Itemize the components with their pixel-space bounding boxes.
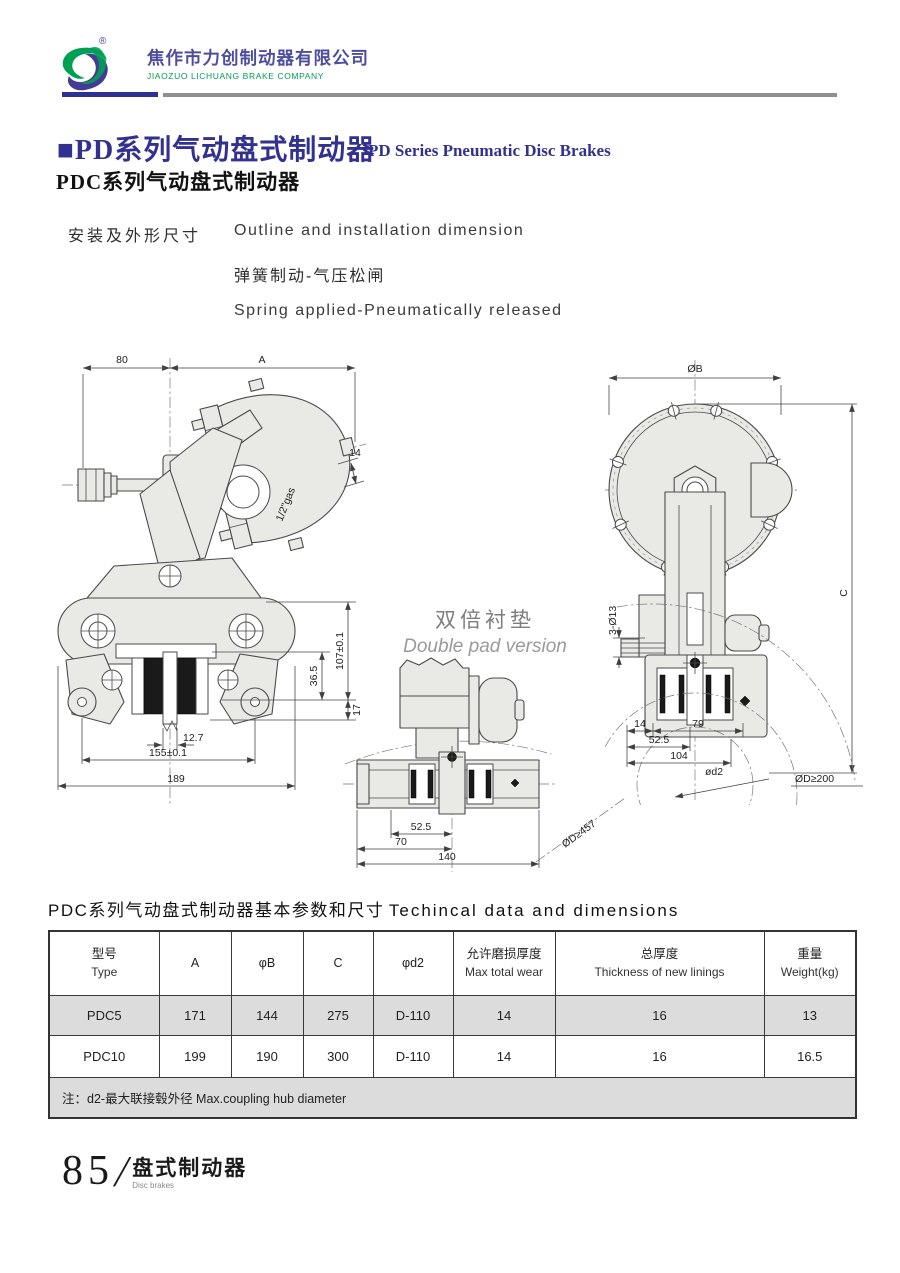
dim-side-104: 104: [670, 750, 688, 762]
table-cell: 16: [555, 1035, 764, 1077]
double-pad-caption: 双倍衬垫 Double pad version: [345, 604, 625, 658]
col-header-phiB: φB: [231, 931, 303, 995]
dim-dp-disc: ØD≥457: [560, 818, 599, 851]
logo-swirl-icon: [55, 40, 141, 96]
page-title-cn: ■PD系列气动盘式制动器: [57, 128, 375, 168]
spec-table: 型号Type A φB C φd2 允许磨损厚度Max total wear 总…: [48, 930, 857, 1119]
page-number: 85: [62, 1150, 114, 1192]
dim-A: A: [258, 354, 265, 366]
drawing-double-pad: 52.5 70 140 ØD≥457: [343, 652, 628, 883]
table-cell: 275: [303, 995, 373, 1035]
table-cell: 190: [231, 1035, 303, 1077]
col-header-thickness: 总厚度Thickness of new linings: [555, 931, 764, 995]
dim-3xO13: 3-Ø13: [607, 606, 619, 635]
dim-dp-140: 140: [438, 851, 456, 863]
table-cell: D-110: [373, 1035, 453, 1077]
table-cell: 199: [159, 1035, 231, 1077]
table-cell: 16: [555, 995, 764, 1035]
col-header-A: A: [159, 931, 231, 995]
dim-hub-d2: ød2: [705, 766, 723, 778]
col-header-max-wear: 允许磨损厚度Max total wear: [453, 931, 555, 995]
col-header-type: 型号Type: [49, 931, 159, 995]
brake-pad-left: [144, 658, 163, 714]
table-row-pdc10: PDC10 199 190 300 D-110 14 16 16.5: [49, 1035, 856, 1077]
table-cell: D-110: [373, 995, 453, 1035]
intro-label-en: Outline and installation dimension: [234, 222, 524, 240]
table-cell: 300: [303, 1035, 373, 1077]
company-logo: [55, 40, 141, 96]
table-title-cn: PDC系列气动盘式制动器基本参数和尺寸: [48, 901, 384, 920]
table-cell: 16.5: [764, 1035, 856, 1077]
table-title-en: Techincal data and dimensions: [389, 901, 679, 920]
footer-section-en: Disc brakes: [132, 1181, 247, 1190]
intro-line2-cn: 弹簧制动-气压松闸: [234, 262, 385, 286]
page-subtitle: PDC系列气动盘式制动器: [56, 166, 300, 196]
table-note: 注：d2-最大联接毂外径 Max.coupling hub diameter: [49, 1077, 856, 1118]
table-row-pdc5: PDC5 171 144 275 D-110 14 16 13: [49, 995, 856, 1035]
dim-dp-70: 70: [395, 836, 407, 848]
dim-side-14: 14: [634, 718, 646, 730]
table-cell: PDC10: [49, 1035, 159, 1077]
table-cell: 144: [231, 995, 303, 1035]
footer-slash: /: [111, 1150, 133, 1194]
table-cell: 14: [453, 1035, 555, 1077]
double-pad-title-cn: 双倍衬垫: [345, 604, 625, 634]
table-header-row: 型号Type A φB C φd2 允许磨损厚度Max total wear 总…: [49, 931, 856, 995]
table-cell: 171: [159, 995, 231, 1035]
drawing-front-view: 80 A 1/2"gas 14: [50, 352, 370, 812]
drawing-side-view: ØB C: [605, 355, 895, 805]
table-title: PDC系列气动盘式制动器基本参数和尺寸 Techincal data and d…: [48, 896, 679, 921]
footer-section-cn: 盘式制动器: [132, 1158, 247, 1179]
page-footer: 85 / 盘式制动器 Disc brakes: [62, 1150, 247, 1194]
company-name-cn: 焦作市力创制动器有限公司: [147, 45, 369, 70]
dim-12-7: 12.7: [183, 732, 204, 744]
header-divider-gray: [163, 93, 837, 97]
col-header-weight: 重量Weight(kg): [764, 931, 856, 995]
dim-155: 155±0.1: [149, 747, 187, 759]
table-cell: PDC5: [49, 995, 159, 1035]
dim-C: C: [838, 589, 850, 597]
dim-dp-52-5: 52.5: [411, 821, 432, 833]
dim-189: 189: [167, 773, 185, 785]
company-name-en: JIAOZUO LICHUANG BRAKE COMPANY: [147, 71, 369, 81]
dim-disc-200: ØD≥200: [795, 773, 834, 785]
dim-14: 14: [349, 447, 361, 459]
col-header-C: C: [303, 931, 373, 995]
catalog-page: ® 焦作市力创制动器有限公司 JIAOZUO LICHUANG BRAKE CO…: [0, 0, 900, 1273]
table-cell: 13: [764, 995, 856, 1035]
page-title-en: PD Series Pneumatic Disc Brakes: [368, 141, 611, 161]
registered-mark: ®: [99, 36, 106, 47]
dim-80: 80: [116, 354, 128, 366]
intro-label-cn: 安装及外形尺寸: [68, 222, 201, 246]
table-cell: 14: [453, 995, 555, 1035]
dim-36-5: 36.5: [308, 666, 320, 687]
table-note-row: 注：d2-最大联接毂外径 Max.coupling hub diameter: [49, 1077, 856, 1118]
dim-side-52-5: 52.5: [649, 734, 670, 746]
dim-phiB: ØB: [687, 363, 702, 375]
dim-side-79: 79: [692, 718, 704, 730]
header-divider-purple: [62, 92, 158, 97]
company-name-block: 焦作市力创制动器有限公司 JIAOZUO LICHUANG BRAKE COMP…: [147, 45, 369, 81]
intro-line2-en: Spring applied-Pneumatically released: [234, 302, 563, 320]
col-header-phid2: φd2: [373, 931, 453, 995]
brake-pad-right: [177, 658, 196, 714]
